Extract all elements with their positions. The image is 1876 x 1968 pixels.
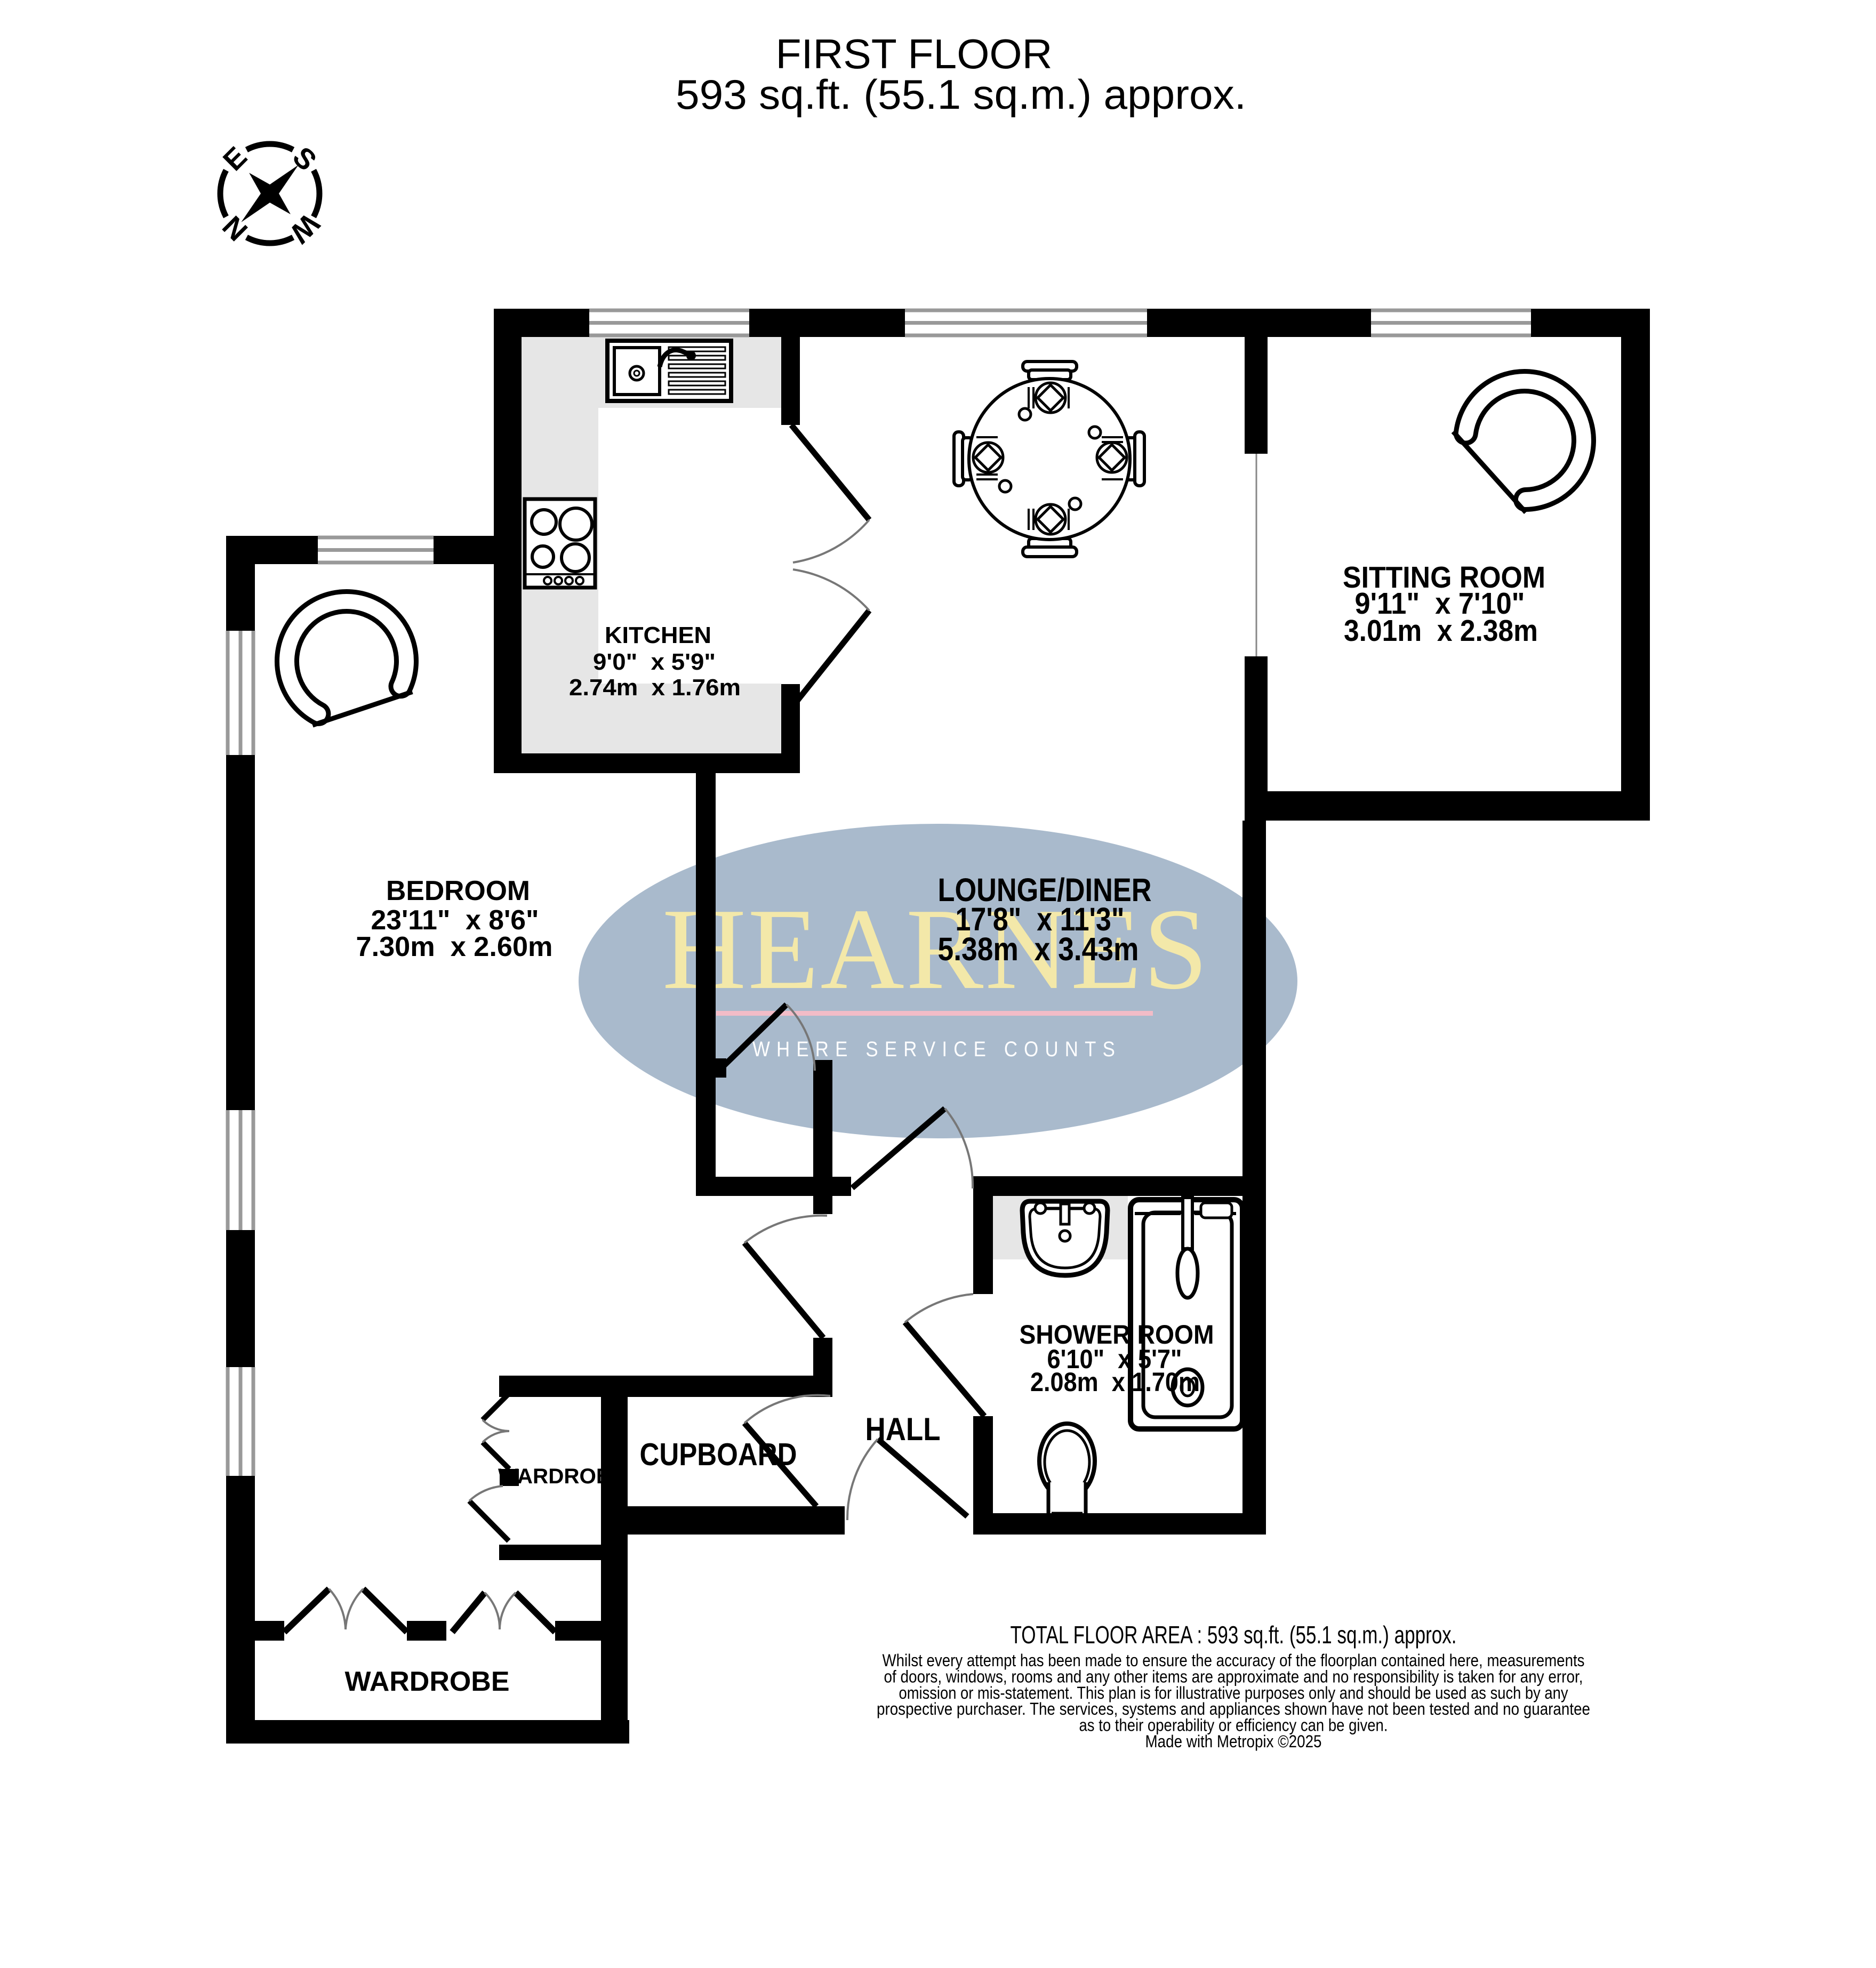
svg-text:3.01m x 2.38m: 3.01m x 2.38m — [1344, 614, 1538, 648]
svg-text:Made with Metropix ©2025: Made with Metropix ©2025 — [1145, 1732, 1322, 1751]
svg-text:BEDROOM: BEDROOM — [386, 875, 530, 906]
svg-text:CUPBOARD: CUPBOARD — [640, 1437, 797, 1472]
svg-text:5.38m x 3.43m: 5.38m x 3.43m — [938, 931, 1139, 967]
svg-text:2.74m x 1.76m: 2.74m x 1.76m — [569, 674, 741, 701]
svg-text:2.08m x 1.70m: 2.08m x 1.70m — [1030, 1367, 1200, 1397]
svg-text:HALL: HALL — [865, 1411, 941, 1447]
svg-text:KITCHEN: KITCHEN — [605, 622, 711, 648]
svg-text:FIRST FLOOR: FIRST FLOOR — [776, 30, 1053, 77]
svg-text:TOTAL FLOOR AREA : 593 sq.ft.: TOTAL FLOOR AREA : 593 sq.ft. (55.1 sq.m… — [1011, 1621, 1457, 1649]
svg-text:WARDROBE: WARDROBE — [345, 1666, 510, 1697]
svg-text:9'0" x 5'9": 9'0" x 5'9" — [593, 649, 716, 675]
svg-text:593 sq.ft. (55.1 sq.m.) approx: 593 sq.ft. (55.1 sq.m.) approx. — [676, 71, 1246, 118]
svg-text:7.30m x 2.60m: 7.30m x 2.60m — [356, 931, 553, 962]
svg-text:WARDROBE: WARDROBE — [498, 1465, 626, 1488]
svg-text:WHERE SERVICE COUNTS: WHERE SERVICE COUNTS — [752, 1038, 1121, 1061]
